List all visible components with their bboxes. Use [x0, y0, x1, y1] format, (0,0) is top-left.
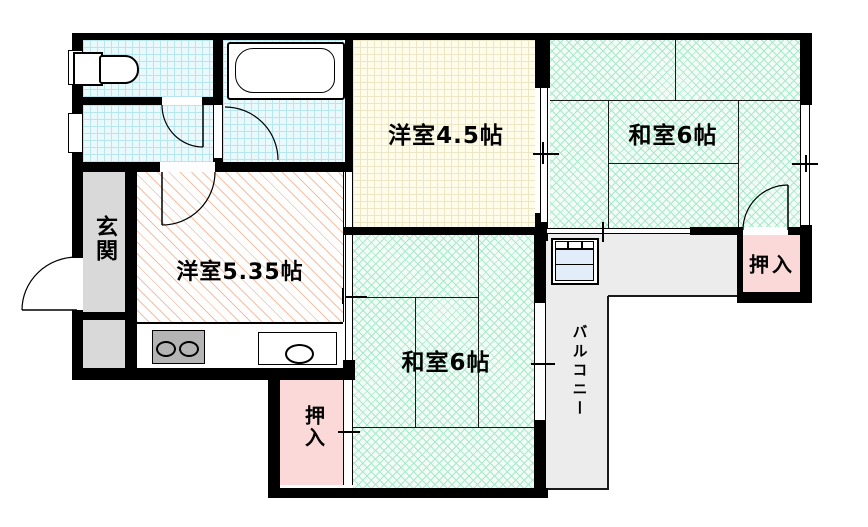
door-opening	[162, 97, 202, 105]
room-label-japanese-top: 和室6帖	[628, 116, 717, 150]
dimension-tick	[542, 142, 544, 164]
floor-plan: 洋室4.5帖 和室6帖 和室6帖 洋室5.35帖 押入 押入 玄関 バルコニー	[0, 0, 868, 527]
wall-segment	[215, 162, 345, 172]
wall-segment	[83, 97, 162, 105]
wall-segment	[202, 97, 213, 105]
bathtub-icon	[235, 48, 335, 93]
bathroom-door-panel[interactable]	[213, 105, 223, 158]
dimension-tick	[602, 222, 604, 242]
tatami-line	[608, 100, 609, 228]
balcony-edge-line	[546, 488, 609, 490]
entrance-floor-lower	[83, 320, 125, 368]
western-room-535-floor	[137, 170, 344, 322]
wall-segment	[800, 33, 812, 105]
wall-segment	[72, 33, 812, 40]
wall-segment	[690, 227, 743, 235]
tatami-line	[353, 297, 479, 298]
tatami-line	[675, 40, 676, 100]
tatami-line	[608, 163, 738, 164]
room-label-closet-top: 押入	[749, 249, 795, 278]
sink-basin-icon	[285, 344, 314, 364]
wall-segment	[737, 292, 812, 303]
room-label-japanese-bottom: 和室6帖	[401, 343, 490, 377]
dimension-tick	[345, 296, 367, 298]
wall-segment	[534, 420, 546, 490]
tatami-line	[738, 100, 739, 228]
dimension-tick	[531, 363, 555, 365]
wall-segment	[213, 33, 223, 105]
dimension-tick	[338, 431, 360, 433]
entrance-door-opening	[72, 258, 83, 310]
ac-unit-cell	[555, 241, 568, 249]
ac-unit-panel	[555, 264, 594, 281]
wall-segment	[268, 368, 355, 380]
balcony-edge-line	[608, 295, 738, 297]
room-label-balcony: バルコニー	[570, 324, 591, 419]
tatami-line	[353, 427, 534, 428]
toilet-icon	[99, 55, 139, 84]
wall-segment	[72, 368, 280, 380]
wall-segment	[343, 227, 547, 235]
window[interactable]	[68, 113, 83, 153]
window[interactable]	[534, 303, 546, 420]
kitchen-counter-edge	[137, 322, 343, 324]
tatami-line	[550, 100, 800, 101]
entrance-door-swing	[22, 257, 77, 310]
room-label-closet-bottom: 押入	[300, 405, 329, 449]
ac-unit-panel	[555, 249, 594, 265]
stove-burner-icon	[156, 341, 176, 357]
wall-segment	[268, 368, 280, 498]
ac-unit-cell	[568, 241, 582, 249]
wall-segment	[535, 33, 550, 88]
tatami-line	[478, 235, 479, 427]
dimension-tick	[805, 155, 807, 172]
ac-unit-cell	[582, 241, 594, 249]
wall-segment	[345, 33, 353, 172]
closet-door-opening	[743, 227, 788, 235]
wall-segment	[534, 235, 546, 303]
wall-segment	[125, 162, 137, 380]
door-opening	[160, 162, 215, 172]
wall-segment	[72, 162, 160, 172]
wall-segment	[83, 312, 125, 320]
stove-burner-icon	[179, 341, 199, 357]
sliding-door[interactable]	[345, 172, 353, 227]
dimension-tick	[342, 288, 344, 304]
room-label-western-45: 洋室4.5帖	[388, 116, 504, 150]
dimension-tick	[533, 153, 559, 155]
balcony-window[interactable]	[547, 228, 690, 234]
wall-segment	[268, 488, 548, 498]
room-label-western-535: 洋室5.35帖	[176, 254, 303, 286]
balcony-edge-line	[607, 296, 609, 490]
washroom-floor	[83, 105, 213, 163]
room-label-entrance: 玄関	[88, 215, 120, 263]
